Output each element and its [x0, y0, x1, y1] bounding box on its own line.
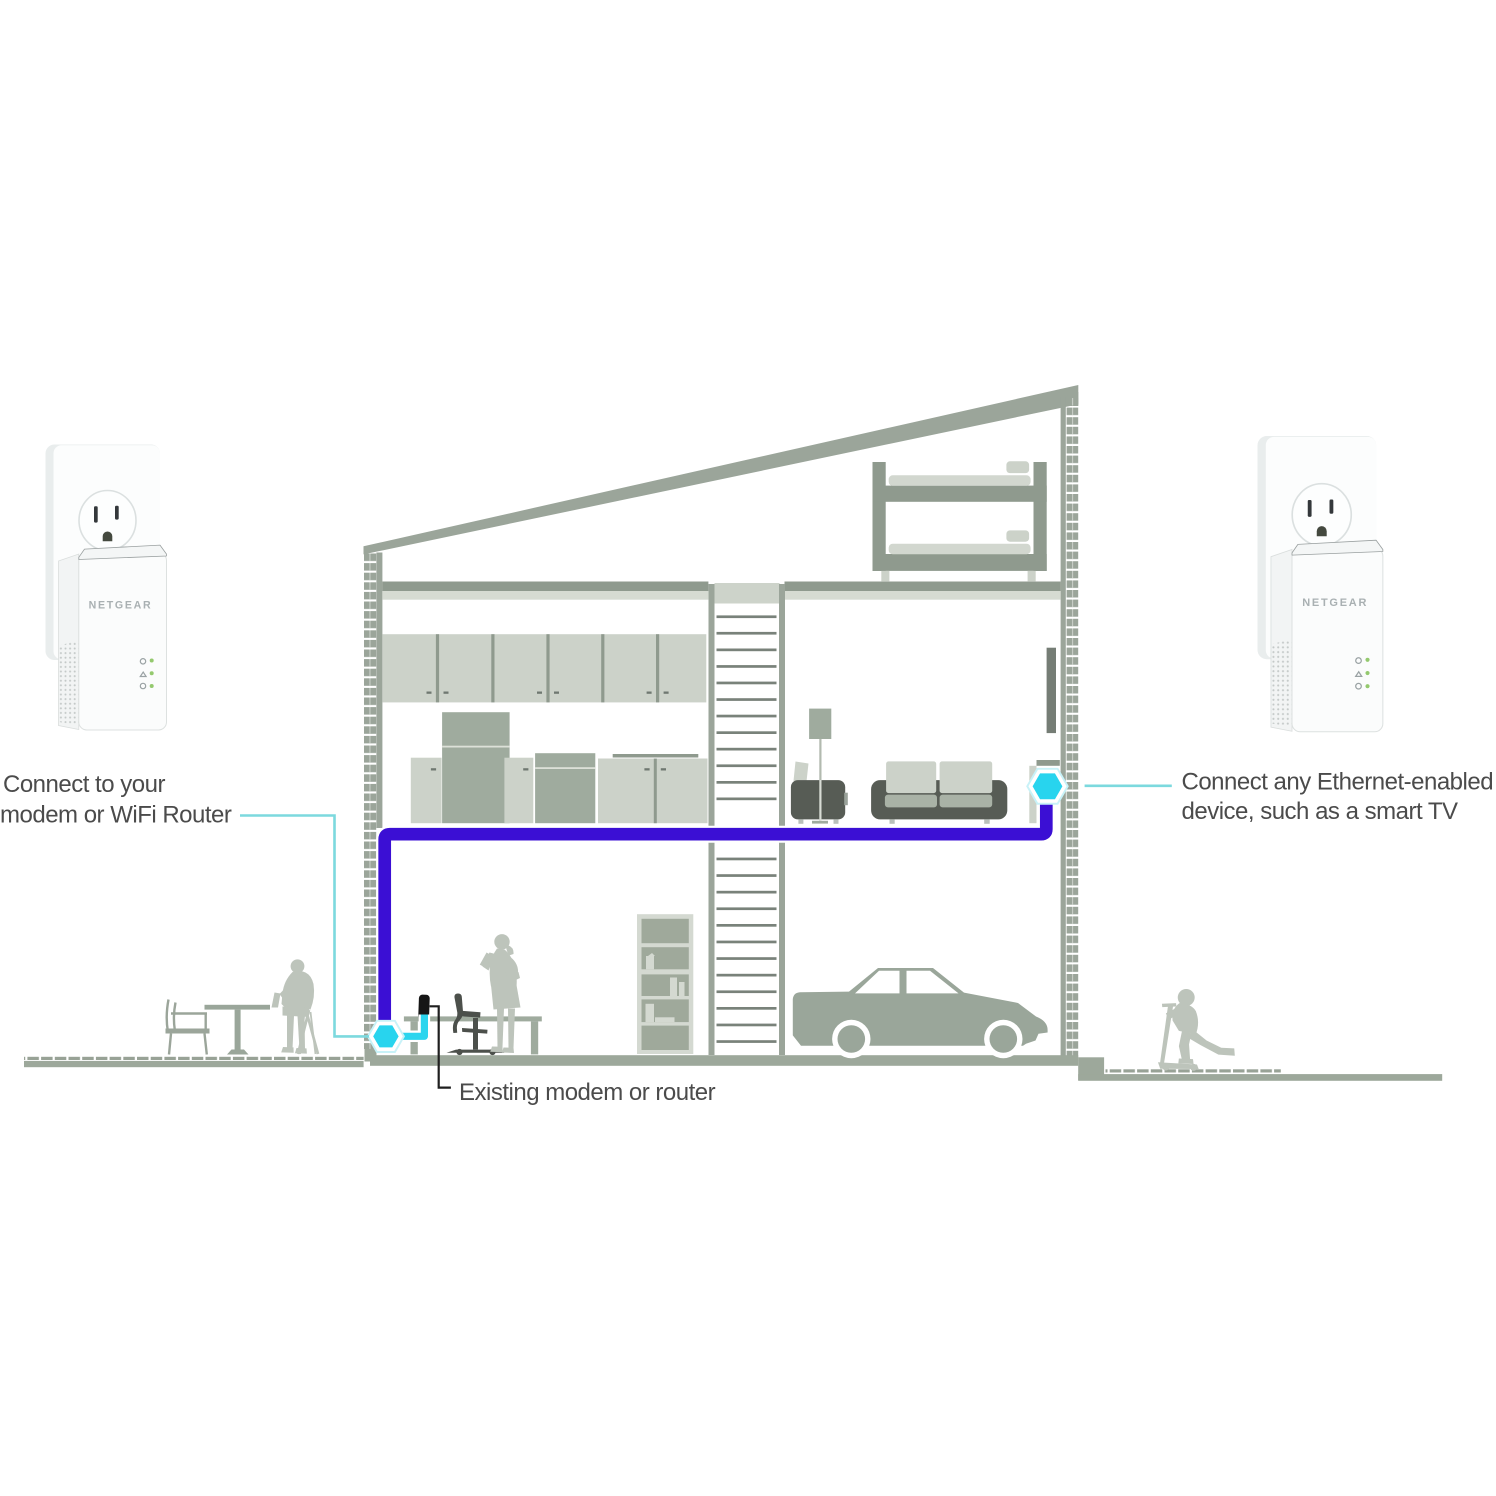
svg-text:Connect to your: Connect to your: [3, 771, 165, 798]
svg-text:device, such as a smart TV: device, such as a smart TV: [1182, 798, 1459, 825]
svg-text:Connect any Ethernet-enabled: Connect any Ethernet-enabled: [1182, 769, 1494, 796]
svg-text:NETGEAR: NETGEAR: [89, 600, 153, 612]
svg-text:NETGEAR: NETGEAR: [1302, 597, 1368, 609]
svg-text:modem or WiFi Router: modem or WiFi Router: [0, 801, 232, 828]
svg-text:Existing modem or router: Existing modem or router: [459, 1079, 716, 1106]
